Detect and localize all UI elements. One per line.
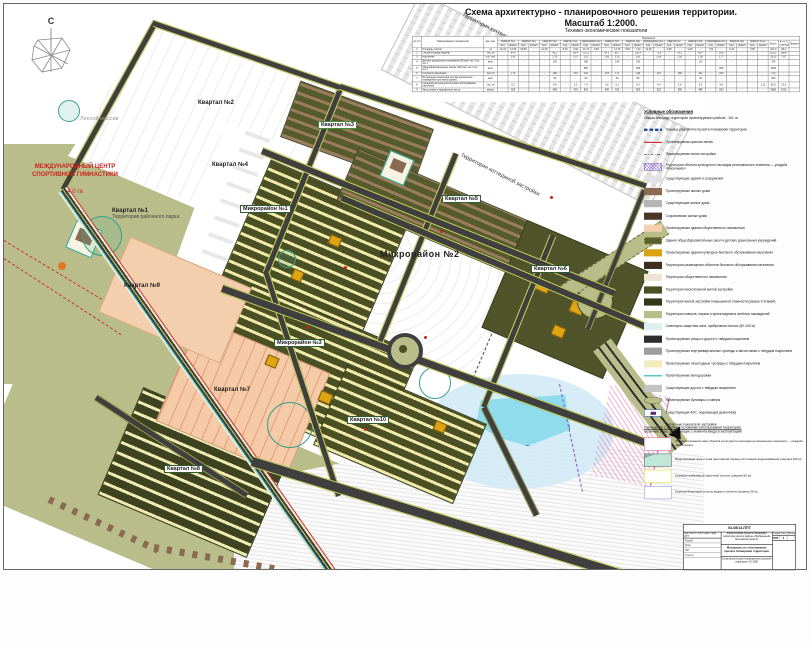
legend-area-note: Общая площадь территории проектируемого …	[644, 117, 806, 121]
legend-label: Территория размещения объектов бытового …	[666, 263, 774, 267]
tree-circle	[58, 100, 80, 122]
tree-circle	[278, 250, 296, 268]
legend-swatch	[644, 262, 662, 269]
legend-label: Территория общественного назначения	[666, 276, 727, 280]
tech-economic-table: № п/пНаименование показателейЕд. изм.Пок…	[412, 36, 800, 102]
legend-swatch	[644, 311, 662, 318]
legend-swatch	[644, 213, 662, 220]
compass-rose-icon	[28, 26, 74, 78]
zone-swatch	[644, 486, 672, 499]
legend-label: Существующие жилые дома	[666, 202, 710, 206]
indicators-table: № п/пНаименование показателейЕд. изм.Пок…	[412, 36, 800, 92]
legend-item: Существующая АЗС, подлежащая демонтажу	[644, 407, 806, 419]
zone-item: Водоохранная зона и зона санитарной охра…	[644, 453, 806, 466]
marker-dot	[364, 428, 367, 431]
map-area-label: Квартал №6	[531, 265, 570, 273]
stamp-signatures: Изм. Кол.уч. Лист №док. Подп. Дата Разра…	[684, 532, 722, 570]
legend-swatch	[644, 375, 662, 376]
legend-swatch	[644, 274, 662, 281]
legend-header: Условные обозначения	[644, 110, 806, 114]
intl-center-area: 4,0 га	[32, 189, 118, 197]
legend-swatch	[644, 360, 662, 367]
legend-label: Проектируемые пешеходные тротуары с твёр…	[666, 362, 761, 366]
map-area-label: Территория коттеджной застройки	[459, 152, 540, 197]
zone-label: Граница охранной зоны объекта культурног…	[675, 440, 806, 447]
title-block: 04-08/14-ППТ Изм. Кол.уч. Лист №док. Под…	[683, 524, 796, 570]
legend-swatch	[644, 225, 662, 232]
legend-label: Существующие дороги с твёрдым покрытием	[666, 386, 736, 390]
legend-item: Территория многоэтажной жилой застройки	[644, 284, 806, 296]
map-area-label: Квартал №10	[347, 416, 389, 424]
zone-label: Граница прибрежной защитной полосы (шири…	[675, 475, 751, 478]
legend-swatch	[644, 200, 662, 207]
zone-swatch	[644, 437, 672, 450]
north-label: С	[28, 16, 74, 26]
project-name: Корректировка проекта планировки террито…	[721, 532, 773, 545]
legend-label: Существующие здания и сооружения	[666, 177, 723, 181]
legend-label: Проектируемые внутриквартальные проезды …	[666, 350, 792, 354]
map-area-label: Лесной массив	[80, 116, 118, 122]
marker-dot	[424, 336, 427, 339]
legend-item: Проектируемые внутриквартальные проезды …	[644, 346, 806, 358]
zone-item: Граница береговой полосы водного объекта…	[644, 486, 806, 499]
legend-swatch	[644, 323, 662, 330]
intl-center-line1: МЕЖДУНАРОДНЫЙ ЦЕНТР	[32, 164, 118, 172]
legend-item: Санитарно-защитная зона, прибрежная поло…	[644, 321, 806, 333]
stamp-right: Стадия Лист Листов ППТ 4	[772, 532, 795, 570]
legend-item: Существующие жилые дома	[644, 198, 806, 210]
legend-items: Граница разработки проекта планировки те…	[644, 124, 806, 431]
sheets-label: Листов	[788, 532, 796, 536]
zone-swatch	[644, 470, 672, 483]
document-title: Материалы по обоснованию проекта планиро…	[721, 545, 773, 557]
legend-swatch	[644, 385, 662, 392]
legend-label: Санитарно-защитная зона, прибрежная поло…	[666, 325, 755, 329]
zone-items: Граница охранной зоны объекта культурног…	[644, 437, 806, 499]
legend-label: Территория объекта культурного наследия …	[666, 163, 806, 171]
legend-label: Здания общеобразовательных школ и детски…	[666, 239, 777, 243]
zones-header-line2: охранные зоны, действующие с момента вво…	[644, 430, 742, 434]
zone-item: Граница охранной зоны объекта культурног…	[644, 437, 806, 450]
legend-item: Здания общеобразовательных школ и детски…	[644, 235, 806, 247]
legend-item: Территория жилой застройки повышенной эт…	[644, 296, 806, 308]
table-caption: Технико-экономические показатели	[413, 28, 799, 34]
zone-swatch	[644, 453, 672, 466]
legend-item: Проектируемые жилые дома	[644, 186, 806, 198]
zones-header: Границы зон с особыми условиями использо…	[644, 426, 806, 434]
map-area-label: Квартал №7	[214, 387, 250, 394]
stamp-sign-row: Н.контр.	[684, 553, 721, 558]
legend-label: Проектируемые бульвары и скверы	[666, 399, 721, 403]
marker-dot	[306, 326, 309, 329]
legend-label: Территория жилой застройки повышенной эт…	[666, 300, 776, 304]
legend-swatch	[644, 176, 662, 183]
legend-label: Существующая АЗС, подлежащая демонтажу	[666, 411, 737, 415]
legend-label: Проектируемые жилые дома	[666, 190, 710, 194]
map-area-label: Квартал №8	[164, 465, 203, 473]
zone-item: Граница прибрежной защитной полосы (шири…	[644, 470, 806, 483]
legend-swatch	[644, 409, 662, 416]
map-area-label: Микрорайон №2	[380, 250, 460, 260]
legend-item: Проектируемая линия застройки	[644, 149, 806, 161]
legend-swatch	[644, 299, 662, 306]
zones-header-line1: Границы зон с особыми условиями использо…	[644, 426, 741, 430]
legend-label: Проектируемая линия застройки	[666, 153, 716, 157]
legend-item: Территория объекта культурного наследия …	[644, 161, 806, 173]
legend-item: Территория общественного назначения	[644, 272, 806, 284]
north-arrow: С	[28, 16, 74, 83]
map-area-label: Квартал №1Территория районного парка	[112, 208, 179, 220]
map-area-label: Микрорайон №3	[274, 339, 325, 347]
map-area-label: Квартал №5	[442, 195, 481, 203]
legend-item: Существующие здания и сооружения	[644, 173, 806, 185]
legend-label: Граница разработки проекта планировки те…	[666, 128, 747, 132]
map-area-label: Микрорайон №1	[240, 205, 291, 213]
sheet-label: Лист	[780, 532, 787, 536]
sheet-value: 4	[780, 536, 788, 540]
legend-swatch	[644, 336, 662, 343]
legend-label: Проектируемая красная линия	[666, 140, 713, 144]
legend-label: Проектируемые велодорожки	[666, 374, 711, 378]
legend-item: Проектируемые велодорожки	[644, 370, 806, 382]
legend-swatch	[644, 129, 662, 131]
intl-center-line2: СПОРТИВНОЙ ГИМНАСТИКИ	[32, 172, 118, 180]
legend-item: Существующие дороги с твёрдым покрытием	[644, 382, 806, 394]
map-area-label: Квартал №4	[212, 162, 248, 169]
marker-dot	[550, 196, 553, 199]
marker-dot	[58, 262, 66, 270]
title-line1: Схема архитектурно - планировочного реше…	[400, 7, 802, 18]
legend-swatch	[644, 348, 662, 355]
stage-value: ППТ	[772, 536, 780, 540]
legend-label: Проектируемые здания культурно-бытового …	[666, 251, 773, 255]
sheets-value	[788, 536, 796, 540]
legend-item: Проектируемые улицы и дороги с твёрдым п…	[644, 333, 806, 345]
legend-swatch	[644, 249, 662, 256]
organization-name	[772, 541, 795, 546]
legend-item: Сохраняемые жилые дома	[644, 210, 806, 222]
marker-dot	[440, 230, 443, 233]
legend-label: Территория скверов, парков и проектируем…	[666, 313, 770, 317]
roundabout	[387, 333, 423, 369]
legend-item: Проектируемая красная линия	[644, 136, 806, 148]
legend-swatch	[644, 154, 662, 155]
legend-item: Проектируемые здания общественного назна…	[644, 223, 806, 235]
legend-label: Территория многоэтажной жилой застройки	[666, 288, 733, 292]
legend-item: Граница разработки проекта планировки те…	[644, 124, 806, 136]
stamp-center: Корректировка проекта планировки террито…	[721, 532, 773, 570]
legend-swatch	[644, 286, 662, 293]
legend-item: Территория скверов, парков и проектируем…	[644, 309, 806, 321]
sheet-title: Схема архитектурно - планировочного реше…	[400, 7, 802, 30]
sheet-name: Схема архитектурно-планировочного решени…	[721, 557, 773, 564]
legend-swatch	[644, 188, 662, 195]
legend-swatch	[644, 142, 662, 143]
legend-item: Территория размещения объектов бытового …	[644, 259, 806, 271]
legend-label: Проектируемые здания общественного назна…	[666, 227, 745, 231]
legend-item: Проектируемые бульвары и скверы	[644, 395, 806, 407]
legend-swatch	[644, 237, 662, 244]
legend-label: Проектируемые улицы и дороги с твёрдым п…	[666, 337, 750, 341]
stage-label: Стадия	[772, 532, 780, 536]
legend-item: Проектируемые пешеходные тротуары с твёр…	[644, 358, 806, 370]
zone-label: Граница береговой полосы водного объекта…	[675, 491, 757, 494]
map-area-label: Квартал №3	[318, 121, 357, 129]
map-area-label: Квартал №2	[198, 100, 234, 107]
zone-label: Водоохранная зона и зона санитарной охра…	[675, 458, 801, 461]
legend-item: Проектируемые здания культурно-бытового …	[644, 247, 806, 259]
legend-swatch	[644, 163, 662, 170]
map-area-label: Квартал №9	[124, 283, 160, 290]
legend-swatch	[644, 397, 662, 404]
intl-gymnastics-center-label: МЕЖДУНАРОДНЫЙ ЦЕНТР СПОРТИВНОЙ ГИМНАСТИК…	[32, 164, 118, 197]
marker-dot	[344, 266, 347, 269]
legend-label: Сохраняемые жилые дома	[666, 214, 707, 218]
